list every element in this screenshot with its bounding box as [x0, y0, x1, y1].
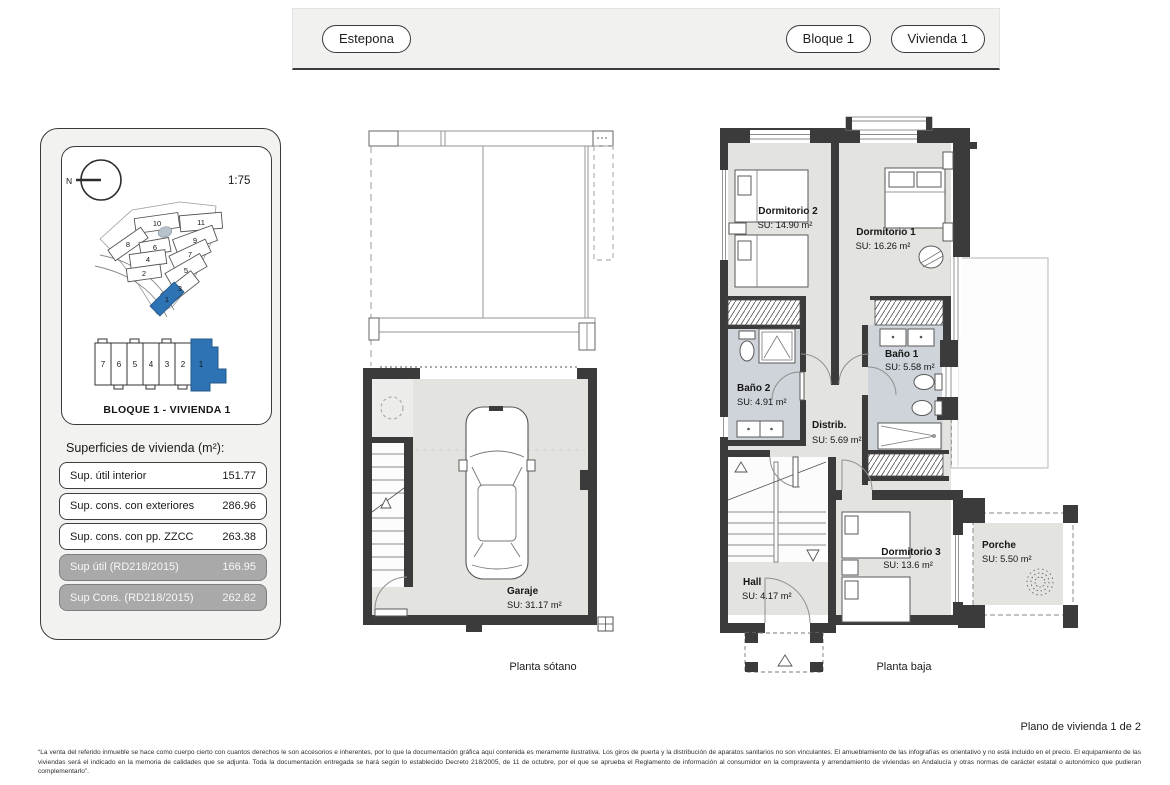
svg-text:Hall: Hall — [743, 577, 762, 588]
svg-text:4: 4 — [146, 255, 150, 264]
svg-text:7: 7 — [188, 250, 192, 259]
svg-text:6: 6 — [117, 360, 122, 369]
nightstand — [729, 223, 746, 234]
svg-text:SU: 5.58 m²: SU: 5.58 m² — [885, 362, 935, 372]
toilet-tank — [739, 331, 755, 339]
pillow — [738, 241, 751, 260]
toilet — [914, 375, 934, 390]
building-strip: 7 6 5 4 3 2 1 BLOQUE 1 - VIVIENDA 1 — [95, 339, 231, 416]
svg-text:8: 8 — [126, 240, 130, 249]
surface-row: Sup Cons. (RD218/2015)262.82 — [59, 584, 267, 611]
svg-text:5: 5 — [133, 360, 138, 369]
site-plan: 10 11 8 6 9 7 4 5 2 3 1 — [95, 202, 223, 317]
entrance-steps — [745, 633, 823, 672]
svg-text:SU: 16.26 m²: SU: 16.26 m² — [856, 241, 911, 251]
unit-1-selected[interactable] — [191, 339, 226, 391]
svg-text:7: 7 — [101, 360, 106, 369]
svg-text:1: 1 — [199, 360, 204, 369]
scale-label: 1:75 — [228, 175, 250, 187]
svg-text:5: 5 — [184, 266, 188, 275]
site-map-svg: N 1:75 — [62, 147, 272, 425]
unit-button[interactable]: Vivienda 1 — [891, 25, 985, 53]
car-top-view — [459, 406, 535, 579]
svg-text:SU: 4.17 m²: SU: 4.17 m² — [742, 591, 792, 601]
svg-text:SU: 5.69 m²: SU: 5.69 m² — [812, 435, 862, 445]
legal-disclaimer: “La venta del referido inmueble se hace … — [38, 748, 1141, 777]
pillow — [889, 172, 914, 187]
svg-text:Dormitorio 2: Dormitorio 2 — [758, 206, 818, 217]
bidet — [912, 401, 932, 416]
car-mirror — [459, 460, 467, 471]
armchair — [919, 246, 943, 268]
surface-row: Sup. cons. con pp. ZZCC263.38 — [59, 523, 267, 550]
svg-text:6: 6 — [153, 243, 157, 252]
page-label: Plano de vivienda 1 de 2 — [1021, 721, 1141, 733]
svg-text:3: 3 — [165, 360, 170, 369]
utility-room-floor — [372, 379, 413, 437]
nightstand — [943, 223, 953, 241]
surfaces-table: Sup. útil interior151.77 Sup. cons. con … — [59, 462, 267, 615]
svg-text:Porche: Porche — [982, 540, 1016, 551]
surfaces-title: Superficies de vivienda (m²): — [66, 441, 224, 455]
car-mirror — [527, 460, 535, 471]
block-caption: BLOQUE 1 - VIVIENDA 1 — [103, 404, 230, 416]
pillow — [917, 172, 941, 187]
svg-text:SU: 4.91 m²: SU: 4.91 m² — [737, 397, 787, 407]
header-bar: Estepona Bloque 1 Vivienda 1 — [292, 8, 1000, 70]
nightstand — [943, 152, 953, 169]
svg-text:2: 2 — [181, 360, 186, 369]
plan-viewer-page: Estepona Bloque 1 Vivienda 1 N 1:75 — [0, 0, 1170, 785]
svg-text:Dormitorio 1: Dormitorio 1 — [856, 227, 916, 238]
surface-row: Sup. útil interior151.77 — [59, 462, 267, 489]
svg-text:Baño 2: Baño 2 — [737, 383, 771, 394]
svg-text:3: 3 — [178, 284, 182, 293]
balcony-planter — [846, 117, 932, 130]
pillow — [845, 516, 858, 534]
svg-text:Dormitorio 3: Dormitorio 3 — [881, 547, 941, 558]
toilet — [740, 341, 754, 361]
info-panel: N 1:75 — [40, 128, 281, 640]
pillow — [845, 581, 858, 599]
block-button[interactable]: Bloque 1 — [786, 25, 871, 53]
surface-row: Sup. cons. con exteriores286.96 — [59, 493, 267, 520]
svg-text:Baño 1: Baño 1 — [885, 349, 919, 360]
basement-floor-plan: Garaje SU: 31.17 m² — [355, 120, 635, 665]
ground-floor-plan: Dormitorio 2 SU: 14.90 m² Dormitorio 1 S… — [715, 110, 1115, 675]
ground-stairs — [728, 457, 828, 562]
location-button[interactable]: Estepona — [322, 25, 411, 53]
svg-text:SU: 13.6 m²: SU: 13.6 m² — [883, 560, 933, 570]
svg-text:Distrib.: Distrib. — [812, 420, 847, 431]
pillow — [738, 176, 751, 195]
exterior-window-symbol — [598, 617, 613, 631]
nightstand — [842, 560, 858, 575]
porch-floor — [973, 523, 1063, 605]
svg-text:SU: 14.90 m²: SU: 14.90 m² — [758, 220, 813, 230]
garage-label: Garaje — [507, 586, 539, 597]
svg-text:10: 10 — [153, 219, 161, 228]
compass-icon: N — [66, 160, 121, 200]
svg-text:N: N — [66, 176, 72, 186]
svg-text:2: 2 — [142, 269, 146, 278]
site-map-card: N 1:75 — [61, 146, 272, 425]
garage-area: SU: 31.17 m² — [507, 600, 562, 610]
svg-text:SU: 5.50 m²: SU: 5.50 m² — [982, 554, 1032, 564]
svg-text:11: 11 — [197, 218, 205, 227]
svg-text:1: 1 — [165, 295, 169, 304]
driveway-structure — [369, 131, 613, 367]
side-terrace — [951, 258, 1048, 468]
svg-text:4: 4 — [149, 360, 154, 369]
svg-text:9: 9 — [193, 236, 197, 245]
surface-row: Sup útil (RD218/2015)166.95 — [59, 554, 267, 581]
